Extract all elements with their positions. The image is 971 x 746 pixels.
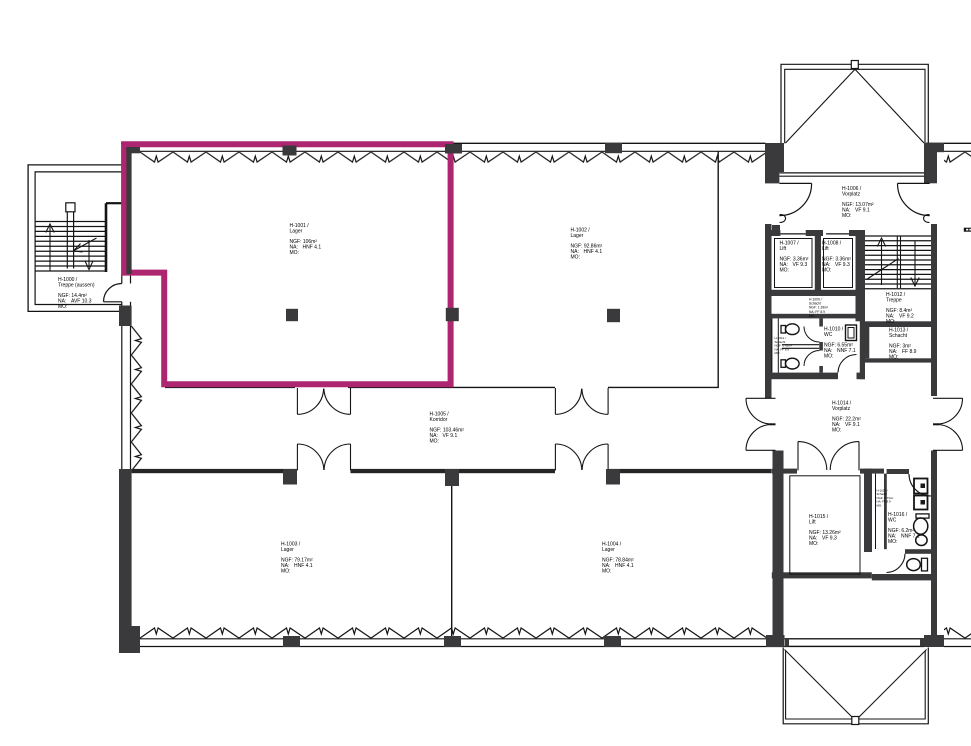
svg-text:HNF 4.1: HNF 4.1 — [615, 563, 634, 569]
svg-text:VF 9.3: VF 9.3 — [835, 262, 850, 268]
svg-text:VF 9.1: VF 9.1 — [855, 207, 870, 213]
svg-text:MO:: MO: — [290, 250, 299, 256]
svg-text:WC: WC — [824, 332, 833, 338]
svg-text:Lager: Lager — [290, 229, 303, 235]
svg-text:Lift: Lift — [809, 520, 816, 526]
svg-text:MO:: MO: — [809, 314, 815, 318]
svg-text:Lager: Lager — [602, 547, 615, 553]
svg-text:Lift: Lift — [780, 246, 787, 252]
svg-text:Korridor: Korridor — [430, 417, 448, 423]
svg-text:MO:: MO: — [824, 353, 833, 359]
svg-text:VF 9.3: VF 9.3 — [822, 535, 837, 541]
svg-text:Vorplatz: Vorplatz — [832, 406, 851, 412]
svg-text:MO:: MO: — [430, 438, 439, 444]
svg-text:MO:: MO: — [888, 539, 897, 545]
svg-text:MO:: MO: — [780, 267, 789, 273]
svg-text:FF 8.9: FF 8.9 — [902, 349, 917, 355]
svg-text:Lager: Lager — [571, 233, 584, 239]
svg-text:MO:: MO: — [775, 351, 781, 355]
svg-text:MO:: MO: — [281, 568, 290, 574]
svg-text:MO:: MO: — [889, 354, 898, 360]
svg-text:VF 9.2: VF 9.2 — [899, 313, 914, 319]
svg-text:MO:: MO: — [886, 319, 895, 325]
svg-text:MO:: MO: — [58, 304, 67, 310]
svg-text:HNF 4.1: HNF 4.1 — [584, 249, 603, 255]
svg-text:MO:: MO: — [602, 568, 611, 574]
svg-text:Schacht: Schacht — [889, 333, 908, 339]
svg-text:MO:: MO: — [571, 254, 580, 260]
svg-text:HNF 4.1: HNF 4.1 — [294, 563, 313, 569]
svg-text:MO:: MO: — [832, 427, 841, 433]
svg-text:NNF 7.1: NNF 7.1 — [837, 348, 856, 354]
svg-text:VF 9.1: VF 9.1 — [443, 433, 458, 439]
svg-text:MO:: MO: — [842, 213, 851, 219]
svg-text:VF 9.3: VF 9.3 — [793, 262, 808, 268]
svg-text:Lager: Lager — [281, 547, 294, 553]
svg-text:NNF 7.1: NNF 7.1 — [901, 533, 920, 539]
svg-text:MO:: MO: — [809, 541, 818, 547]
svg-text:MO:: MO: — [822, 267, 831, 273]
svg-text:VF 9.1: VF 9.1 — [845, 422, 860, 428]
svg-text:HNF 4.1: HNF 4.1 — [303, 244, 322, 250]
svg-text:Treppe: Treppe — [886, 298, 902, 304]
svg-text:AVF 10.3: AVF 10.3 — [71, 298, 92, 304]
svg-text:Treppe (aussen): Treppe (aussen) — [58, 283, 95, 289]
svg-text:WC: WC — [888, 518, 897, 524]
svg-text:MO:: MO: — [877, 503, 883, 507]
svg-text:Vorplatz: Vorplatz — [842, 192, 861, 198]
svg-text:Lift: Lift — [822, 246, 829, 252]
